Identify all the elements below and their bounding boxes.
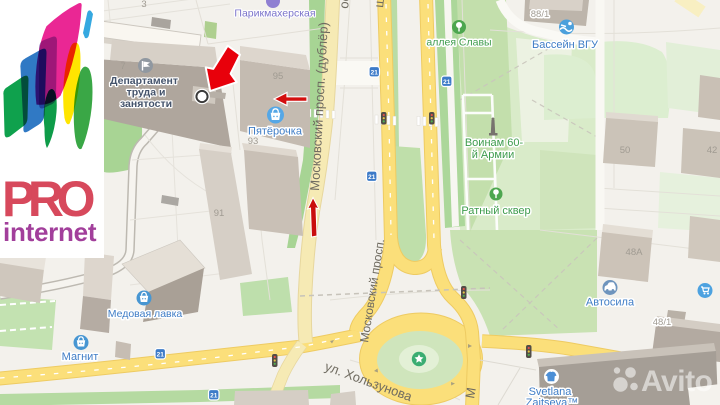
svg-text:50: 50 bbox=[620, 145, 631, 156]
svg-text:88/1: 88/1 bbox=[531, 9, 550, 20]
svg-text:21: 21 bbox=[368, 174, 376, 181]
svg-text:Департамент: Департамент bbox=[110, 75, 178, 87]
svg-text:internet: internet bbox=[3, 217, 97, 247]
svg-text:21: 21 bbox=[157, 351, 165, 358]
svg-text:21: 21 bbox=[371, 69, 379, 76]
svg-text:3: 3 bbox=[141, 0, 146, 10]
svg-text:Медовая лавка: Медовая лавка bbox=[108, 308, 183, 320]
svg-text:Магнит: Магнит bbox=[62, 351, 99, 363]
svg-text:Автосила: Автосила bbox=[586, 297, 635, 309]
svg-text:95: 95 bbox=[273, 71, 284, 82]
svg-text:ш: ш bbox=[371, 0, 387, 8]
svg-text:труда и: труда и bbox=[127, 87, 166, 99]
svg-text:Парикмахерская: Парикмахерская bbox=[234, 8, 315, 20]
svg-text:Avito: Avito bbox=[641, 365, 713, 398]
svg-text:7: 7 bbox=[120, 61, 125, 72]
svg-text:48А: 48А bbox=[626, 247, 644, 258]
svg-text:42: 42 bbox=[707, 145, 718, 156]
svg-text:аллея Славы: аллея Славы bbox=[426, 37, 491, 49]
svg-text:Воинам 60-: Воинам 60- bbox=[465, 137, 524, 149]
svg-text:й Армии: й Армии bbox=[472, 149, 515, 161]
svg-text:48/1: 48/1 bbox=[653, 317, 672, 328]
svg-text:Бассейн ВГУ: Бассейн ВГУ bbox=[532, 39, 599, 51]
svg-text:91: 91 bbox=[214, 208, 225, 219]
svg-text:Zaitseva™: Zaitseva™ bbox=[526, 397, 579, 405]
svg-text:Ратный сквер: Ратный сквер bbox=[461, 205, 530, 217]
svg-text:осп.: осп. bbox=[336, 0, 353, 9]
svg-text:21: 21 bbox=[210, 392, 218, 399]
svg-text:21: 21 bbox=[443, 79, 451, 86]
svg-text:93: 93 bbox=[248, 136, 259, 147]
svg-text:занятости: занятости bbox=[120, 98, 172, 110]
